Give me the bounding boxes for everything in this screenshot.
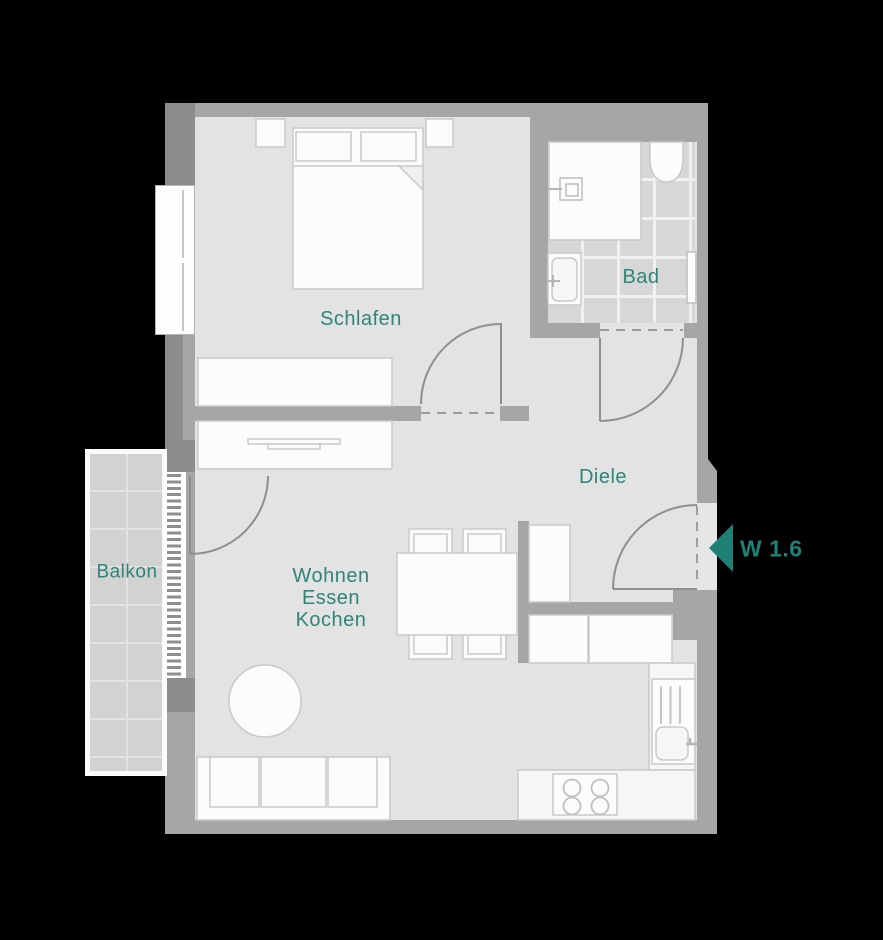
wall-bathroom-left: [530, 142, 548, 338]
wall-pier-balcony-bottom: [165, 678, 195, 712]
bathroom-floor: [548, 142, 695, 323]
wall-right-upper: [697, 103, 708, 471]
wall-pier-top-left: [165, 103, 195, 188]
balcony: [85, 449, 167, 776]
wall-kitchen-horizontal: [529, 602, 673, 615]
wall-bathroom-bottom-right: [684, 323, 697, 338]
bathroom-label: Bad: [622, 266, 659, 288]
wall-step: [708, 459, 717, 471]
balcony-door-glazing: [167, 474, 181, 676]
floor-plan: Schlafen Bad Diele Wohnen Essen Kochen B…: [0, 0, 883, 940]
wall-bathroom-top: [530, 103, 697, 142]
wall-entrance-pier: [673, 590, 697, 640]
bedroom-label: Schlafen: [320, 308, 402, 330]
balcony-door: [164, 472, 186, 678]
unit-label: W 1.6: [740, 536, 803, 563]
wall-bedroom-south-stub: [500, 406, 529, 421]
balcony-label: Balkon: [96, 563, 157, 584]
wall-pier-balcony-top: [165, 440, 195, 472]
wall-right-lower: [697, 590, 717, 820]
hallway-label: Diele: [579, 466, 627, 488]
bedroom-window: [155, 185, 195, 335]
wall-bottom: [165, 820, 717, 834]
wall-right-mid: [697, 471, 717, 503]
entrance-arrow-icon: [709, 524, 733, 572]
wall-bedroom-south: [195, 406, 421, 421]
living-label: Wohnen Essen Kochen: [292, 565, 369, 631]
wall-hallway-kitchen-vertical: [518, 521, 529, 663]
wall-bathroom-bottom-left: [530, 323, 600, 338]
